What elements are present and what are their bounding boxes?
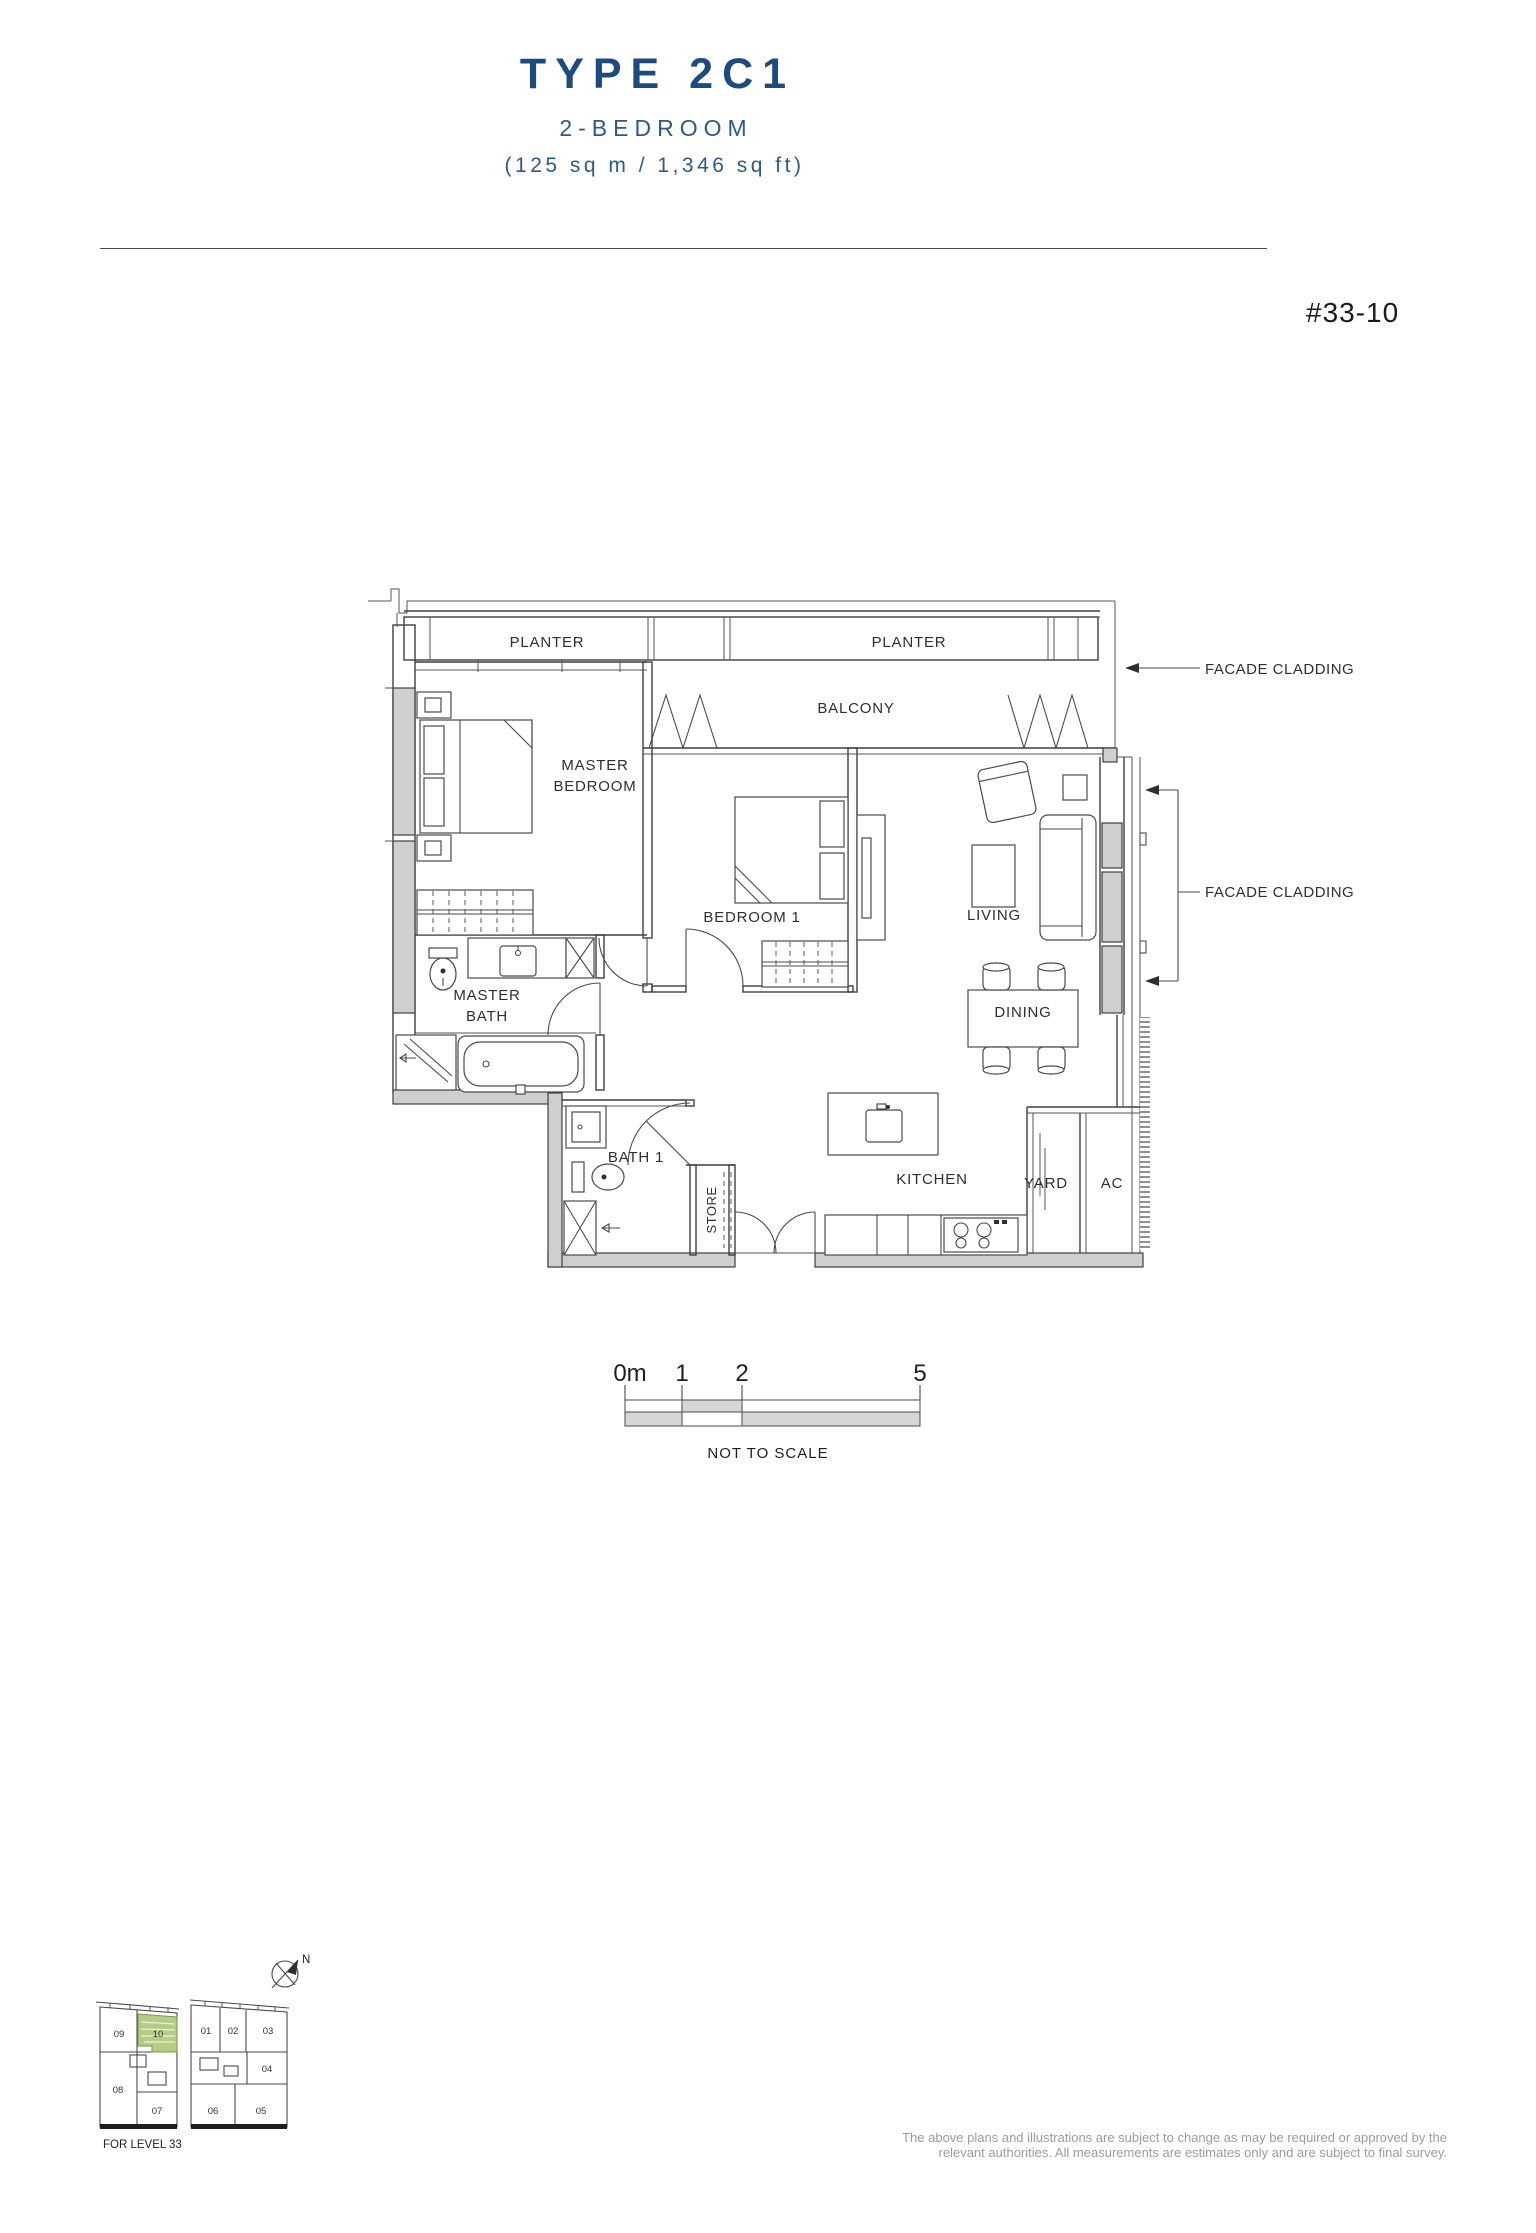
bedroom1-wardrobe — [762, 941, 848, 987]
facade-arrow-top — [1125, 663, 1139, 673]
label-master-bath-2: BATH — [466, 1008, 508, 1025]
north-label: N — [302, 1954, 310, 1966]
plan-furniture — [396, 692, 1096, 1255]
key-unit-08: 08 — [113, 2085, 124, 2096]
label-facade-cladding-right: FACADE CLADDING — [1205, 884, 1354, 901]
floor-plan-page: TYPE 2C1 2-BEDROOM (125 sq m / 1,346 sq … — [0, 0, 1536, 2233]
master-wardrobe — [417, 890, 533, 935]
label-master-bath-1: MASTER — [453, 987, 520, 1004]
key-unit-01: 01 — [201, 2026, 212, 2037]
label-dining: DINING — [994, 1004, 1051, 1021]
hob — [944, 1218, 1018, 1252]
label-planter-left: PLANTER — [510, 634, 585, 651]
facade-annotations: FACADE CLADDING FACADE CLADDING — [1125, 661, 1354, 986]
key-unit-03: 03 — [263, 2026, 274, 2037]
key-plan-level-label: FOR LEVEL 33 — [103, 2139, 182, 2151]
key-unit-10: 10 — [153, 2029, 164, 2040]
key-unit-05: 05 — [256, 2106, 267, 2117]
key-plan: 09 10 01 02 03 04 08 07 06 05 FOR LEVEL … — [96, 2000, 289, 2151]
label-bath1: BATH 1 — [608, 1149, 664, 1166]
scale-note: NOT TO SCALE — [707, 1445, 828, 1462]
label-living: LIVING — [967, 907, 1021, 924]
facade-arrow-right-1 — [1145, 785, 1159, 795]
scale-tick-0m: 0m — [613, 1360, 646, 1387]
scale-bar: 0m 1 2 5 NOT TO SCALE — [613, 1360, 926, 1462]
north-arrow-head — [287, 1960, 298, 1975]
key-unit-04: 04 — [262, 2064, 273, 2075]
scale-tick-1: 1 — [675, 1360, 688, 1387]
label-master-bedroom-1: MASTER — [561, 757, 628, 774]
label-balcony: BALCONY — [817, 700, 894, 717]
label-master-bedroom-2: BEDROOM — [553, 778, 636, 795]
scale-tick-5: 5 — [913, 1360, 926, 1387]
key-unit-02: 02 — [228, 2026, 239, 2037]
disclaimer-line2: relevant authorities. All measurements a… — [600, 2146, 1447, 2161]
label-store: STORE — [704, 1186, 719, 1233]
facade-arrow-right-2 — [1145, 976, 1159, 986]
label-ac: AC — [1101, 1175, 1123, 1192]
label-facade-cladding-top: FACADE CLADDING — [1205, 661, 1354, 678]
key-unit-06: 06 — [208, 2106, 219, 2117]
label-yard: YARD — [1024, 1175, 1068, 1192]
scale-tick-2: 2 — [735, 1360, 748, 1387]
label-planter-right: PLANTER — [872, 634, 947, 651]
label-bedroom1: BEDROOM 1 — [703, 909, 800, 926]
north-arrow: N — [272, 1954, 310, 1988]
disclaimer-line1: The above plans and illustrations are su… — [600, 2131, 1447, 2146]
label-kitchen: KITCHEN — [896, 1171, 967, 1188]
key-unit-07: 07 — [152, 2106, 163, 2117]
floor-plan-drawing: PLANTER PLANTER BALCONY MASTER BEDROOM B… — [0, 0, 1536, 2233]
disclaimer: The above plans and illustrations are su… — [600, 2131, 1447, 2160]
key-unit-09: 09 — [114, 2029, 125, 2040]
